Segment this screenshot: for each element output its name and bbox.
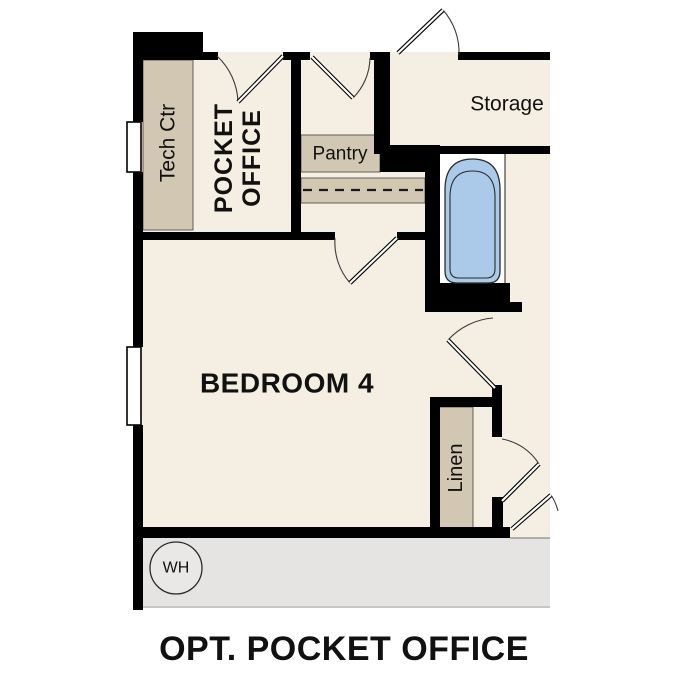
storage-label: Storage [470, 93, 544, 116]
wall-segment [374, 52, 390, 152]
wall-segment [133, 32, 203, 60]
wall-segment [505, 302, 522, 312]
wall-segment [203, 52, 218, 60]
linen-label: Linen [445, 444, 467, 493]
pantry-label: Pantry [313, 144, 368, 165]
water-heater-label: WH [163, 560, 190, 577]
wall-segment [430, 397, 493, 407]
bathtub-fixture [440, 154, 505, 283]
exterior-top [203, 0, 550, 52]
floor-plan-canvas: WH Tech Ctr POCKET OFFICE Pantry Storage… [0, 0, 687, 687]
plan-title: OPT. POCKET OFFICE [159, 630, 529, 668]
wall-segment [133, 527, 510, 538]
tech-ctr-label: Tech Ctr [157, 104, 180, 182]
wall-segment [430, 397, 440, 532]
bedroom-label: BEDROOM 4 [200, 368, 374, 399]
pocket-office-label-line1: POCKET [210, 103, 238, 213]
window [127, 347, 141, 425]
floor-plan-page: WH Tech Ctr POCKET OFFICE Pantry Storage… [0, 0, 687, 687]
wall-segment [492, 497, 503, 532]
garage-floor [143, 538, 550, 608]
wall-segment [133, 232, 335, 240]
wall-segment [397, 232, 440, 240]
window [127, 122, 141, 172]
wall-segment [492, 385, 502, 437]
wall-segment [133, 425, 143, 610]
wall-segment [291, 56, 301, 240]
wall-segment [133, 32, 143, 122]
wall-segment [425, 283, 510, 312]
pocket-office-label-line2: OFFICE [238, 109, 266, 207]
water-heater: WH [150, 542, 202, 594]
wall-segment [133, 172, 143, 347]
bathtub-outer [445, 159, 500, 283]
wall-segment [374, 146, 550, 154]
door-swing-hall-entry [551, 495, 558, 511]
wall-segment [458, 52, 550, 60]
